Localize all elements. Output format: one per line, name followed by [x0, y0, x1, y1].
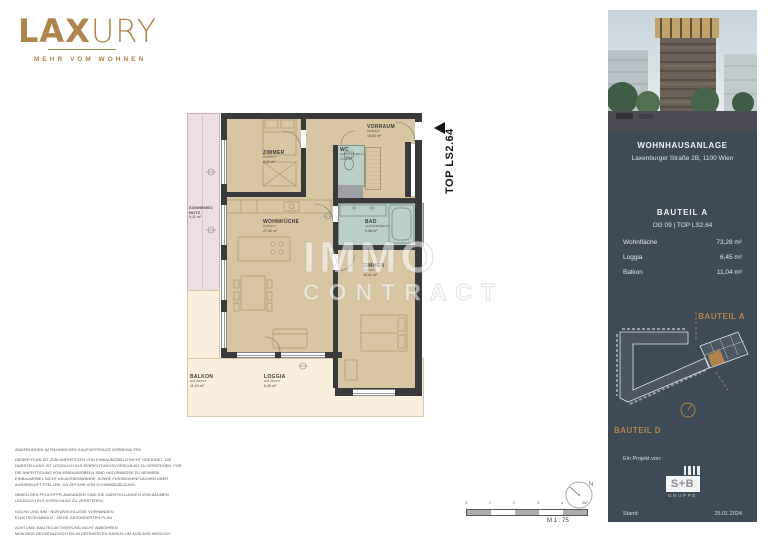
siteplan-bauteil-a-label: BAUTEIL A	[698, 312, 745, 321]
disclaimer-block: ÄNDERUNGEN IM RAHMEN DES KAUFVERTRAGS VO…	[15, 447, 187, 541]
scale-segment	[539, 510, 563, 515]
stat-label: Balkon	[623, 269, 643, 276]
scale-tick: 0	[465, 501, 467, 505]
wall-bath-bottom	[338, 245, 422, 250]
scale-segment	[491, 510, 515, 515]
unit-marker-label: TOP LS2.64	[444, 96, 456, 194]
sb-logo-bars-icon	[666, 466, 700, 475]
window-left-2	[221, 205, 227, 245]
project-by-label: Ein Projekt von:	[623, 456, 662, 462]
entrance-door-gap	[415, 122, 422, 140]
building-title: BAUTEIL A	[608, 208, 757, 217]
bath-door-gap	[333, 206, 338, 222]
window-left-3	[221, 260, 227, 300]
scale-segment	[467, 510, 491, 515]
stand-label: Stand:	[623, 511, 639, 517]
brand-logo-bold: LAX	[18, 12, 91, 50]
room-label-wohnkueche: WOHNKÜCHE PARKETT 27,32 m²	[263, 219, 299, 233]
window-bottom-1	[237, 352, 275, 358]
bedroom1-door-gap	[301, 130, 306, 148]
scale-tick: 3	[537, 501, 539, 505]
room-label-bedroom2: ZIMMER PARKETT 18,41 m²	[363, 263, 385, 277]
scale-ratio-label: M 1 : 75	[547, 518, 569, 524]
window-left-4	[221, 312, 227, 348]
room-label-bedroom1: ZIMMER PARKETT 9,21 m²	[263, 150, 285, 164]
scale-tick: 1	[489, 501, 491, 505]
disclaimer-paragraph: DIESER PLAN IST ZUM ANFERTIGEN VON EINBA…	[15, 457, 187, 488]
stat-label: Loggia	[623, 254, 643, 261]
window-bedroom2	[353, 389, 395, 396]
stat-value: 11,04 m²	[717, 269, 742, 276]
wall-bedroom1-right	[301, 113, 306, 197]
room-label-vorraum: VORRAUM PARKETT 10,84 m²	[367, 124, 395, 138]
scale-tick: 2	[513, 501, 515, 505]
brand-logo-light: URY	[91, 12, 157, 50]
wall-top	[221, 113, 422, 119]
disclaimer-paragraph: KÜCHE UND WM : NUR ANSCHLÜSSE VORHANDEN …	[15, 509, 187, 521]
stand-date: 25.01.2024	[714, 511, 742, 517]
siteplan-bauteil-d-label: BAUTEIL D	[614, 426, 661, 435]
unit-line: OG 09 | TOP LS2.64	[608, 222, 757, 229]
room-label-bad: BAD FEINSTEINZEUG 5,98 m²	[365, 219, 389, 233]
disclaimer-paragraph: NEBEN DEN PFLICHTPFLANZUNGEN SIND DIE DA…	[15, 492, 187, 504]
bauteil-a-outline	[700, 332, 748, 368]
room-label-balkon: BALKON HOLZROST 11,04 m²	[190, 374, 213, 388]
brand-divider	[48, 49, 116, 50]
stat-row-balkon: Balkon 11,04 m²	[623, 269, 742, 276]
stat-value: 6,45 m²	[720, 254, 742, 261]
compass-north-label: N	[589, 482, 593, 488]
project-address: Laxenburger Straße 2B, 1100 Wien	[608, 155, 757, 162]
bedroom2-door-gap	[333, 254, 338, 270]
room-label-loggia: LOGGIA HOLZROST 6,45 m²	[264, 374, 286, 388]
room-label-sonnenschutz: SONNENSCHUTZ 9,11 m²	[189, 206, 215, 220]
building-photo	[608, 10, 757, 132]
stat-label: Wohnfläche	[623, 239, 657, 246]
info-sidebar: WOHNHAUSANLAGE Laxenburger Straße 2B, 11…	[608, 10, 757, 522]
entry-niche-gap	[411, 144, 415, 196]
sb-logo-subtitle: GRUPPE	[666, 493, 700, 498]
disclaimer-paragraph: ÄNDERUNGEN IM RAHMEN DES KAUFVERTRAGS VO…	[15, 447, 187, 453]
compass-icon: N	[562, 477, 598, 513]
brand-tagline: MEHR VOM WOHNEN	[34, 56, 146, 63]
furniture-layer	[185, 100, 467, 432]
stat-row-loggia: Loggia 6,45 m²	[623, 254, 742, 261]
stand-row: Stand: 25.01.2024	[623, 511, 742, 517]
room-label-wc: WC FEINSTEINZEUG 1,52 m²	[340, 147, 364, 161]
plan-sheet: LAXURY MEHR VOM WOHNEN	[0, 0, 770, 544]
project-title: WOHNHAUSANLAGE	[608, 141, 757, 150]
window-left-1	[221, 140, 227, 184]
sb-gruppe-logo: S+B GRUPPE	[608, 466, 757, 498]
wall-hall-bottom	[333, 198, 422, 203]
floor-plan: ZIMMER PARKETT 9,21 m² VORRAUM PARKETT 1…	[185, 100, 467, 432]
stat-row-wohnflaeche: Wohnfläche 73,28 m²	[623, 239, 742, 246]
disclaimer-paragraph: ACHTUNG: BAUTEILAKTIVIERUNG NICHT ANBOHR…	[15, 525, 187, 537]
brand-logo: LAXURY	[18, 12, 157, 50]
stat-value: 73,28 m²	[716, 239, 742, 246]
wall-bedroom1-bottom	[221, 192, 306, 197]
scale-segment	[515, 510, 539, 515]
sb-logo-mark: S+B	[666, 476, 700, 492]
site-plan: BAUTEIL A BAUTEIL D	[608, 298, 757, 448]
wall-right	[415, 113, 422, 396]
window-bottom-2	[281, 352, 325, 358]
bauteil-d-outline	[620, 332, 709, 402]
